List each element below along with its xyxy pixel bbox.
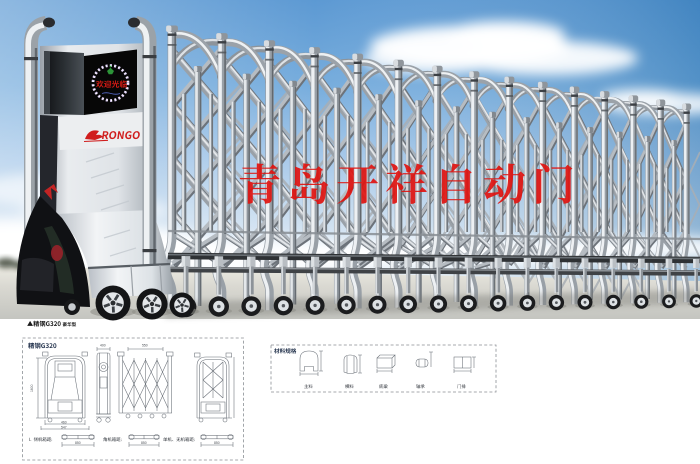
svg-text:1600: 1600: [30, 384, 34, 392]
svg-text:850: 850: [214, 441, 220, 445]
svg-text:850: 850: [75, 441, 81, 445]
svg-text:400: 400: [100, 344, 106, 348]
svg-text:550: 550: [142, 344, 148, 348]
svg-text:850: 850: [141, 441, 147, 445]
svg-text:460: 460: [61, 420, 67, 424]
svg-text:547: 547: [61, 425, 67, 429]
